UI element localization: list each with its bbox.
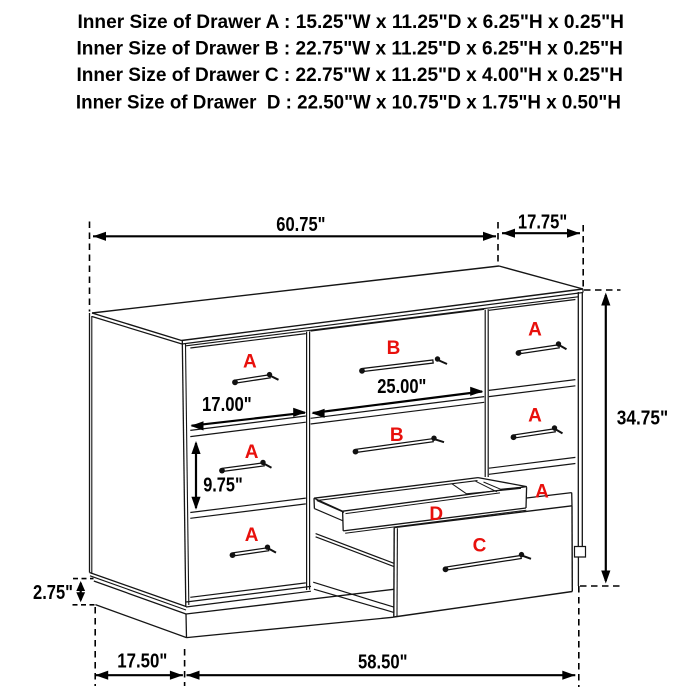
svg-text:B: B: [387, 338, 401, 359]
svg-text:A: A: [535, 482, 549, 503]
svg-text:C: C: [473, 536, 487, 557]
svg-text:Inner Size of Drawer A : 15.25: Inner Size of Drawer A : 15.25"W x 11.25…: [77, 12, 624, 33]
svg-text:34.75": 34.75": [617, 407, 668, 429]
svg-text:2.75": 2.75": [33, 582, 73, 604]
svg-text:D: D: [429, 504, 443, 525]
svg-text:25.00": 25.00": [377, 376, 426, 398]
svg-text:A: A: [528, 320, 542, 341]
svg-text:B: B: [390, 425, 404, 446]
svg-text:A: A: [245, 442, 259, 463]
svg-text:Inner Size of Drawer B : 22.75: Inner Size of Drawer B : 22.75"W x 11.25…: [76, 39, 623, 60]
svg-text:17.50": 17.50": [117, 650, 167, 672]
svg-text:17.00": 17.00": [202, 394, 252, 416]
svg-text:Inner Size of Drawer D : 22.5: Inner Size of Drawer D : 22.50"W x 10.75…: [76, 93, 621, 114]
svg-text:Inner Size of Drawer C : 22.75: Inner Size of Drawer C : 22.75"W x 11.25…: [76, 65, 623, 86]
svg-text:9.75": 9.75": [203, 474, 243, 496]
svg-text:A: A: [245, 525, 259, 546]
svg-text:60.75": 60.75": [276, 214, 325, 236]
svg-text:58.50": 58.50": [358, 652, 408, 674]
svg-text:A: A: [243, 352, 257, 373]
svg-text:A: A: [528, 406, 542, 427]
svg-text:17.75": 17.75": [518, 212, 567, 234]
